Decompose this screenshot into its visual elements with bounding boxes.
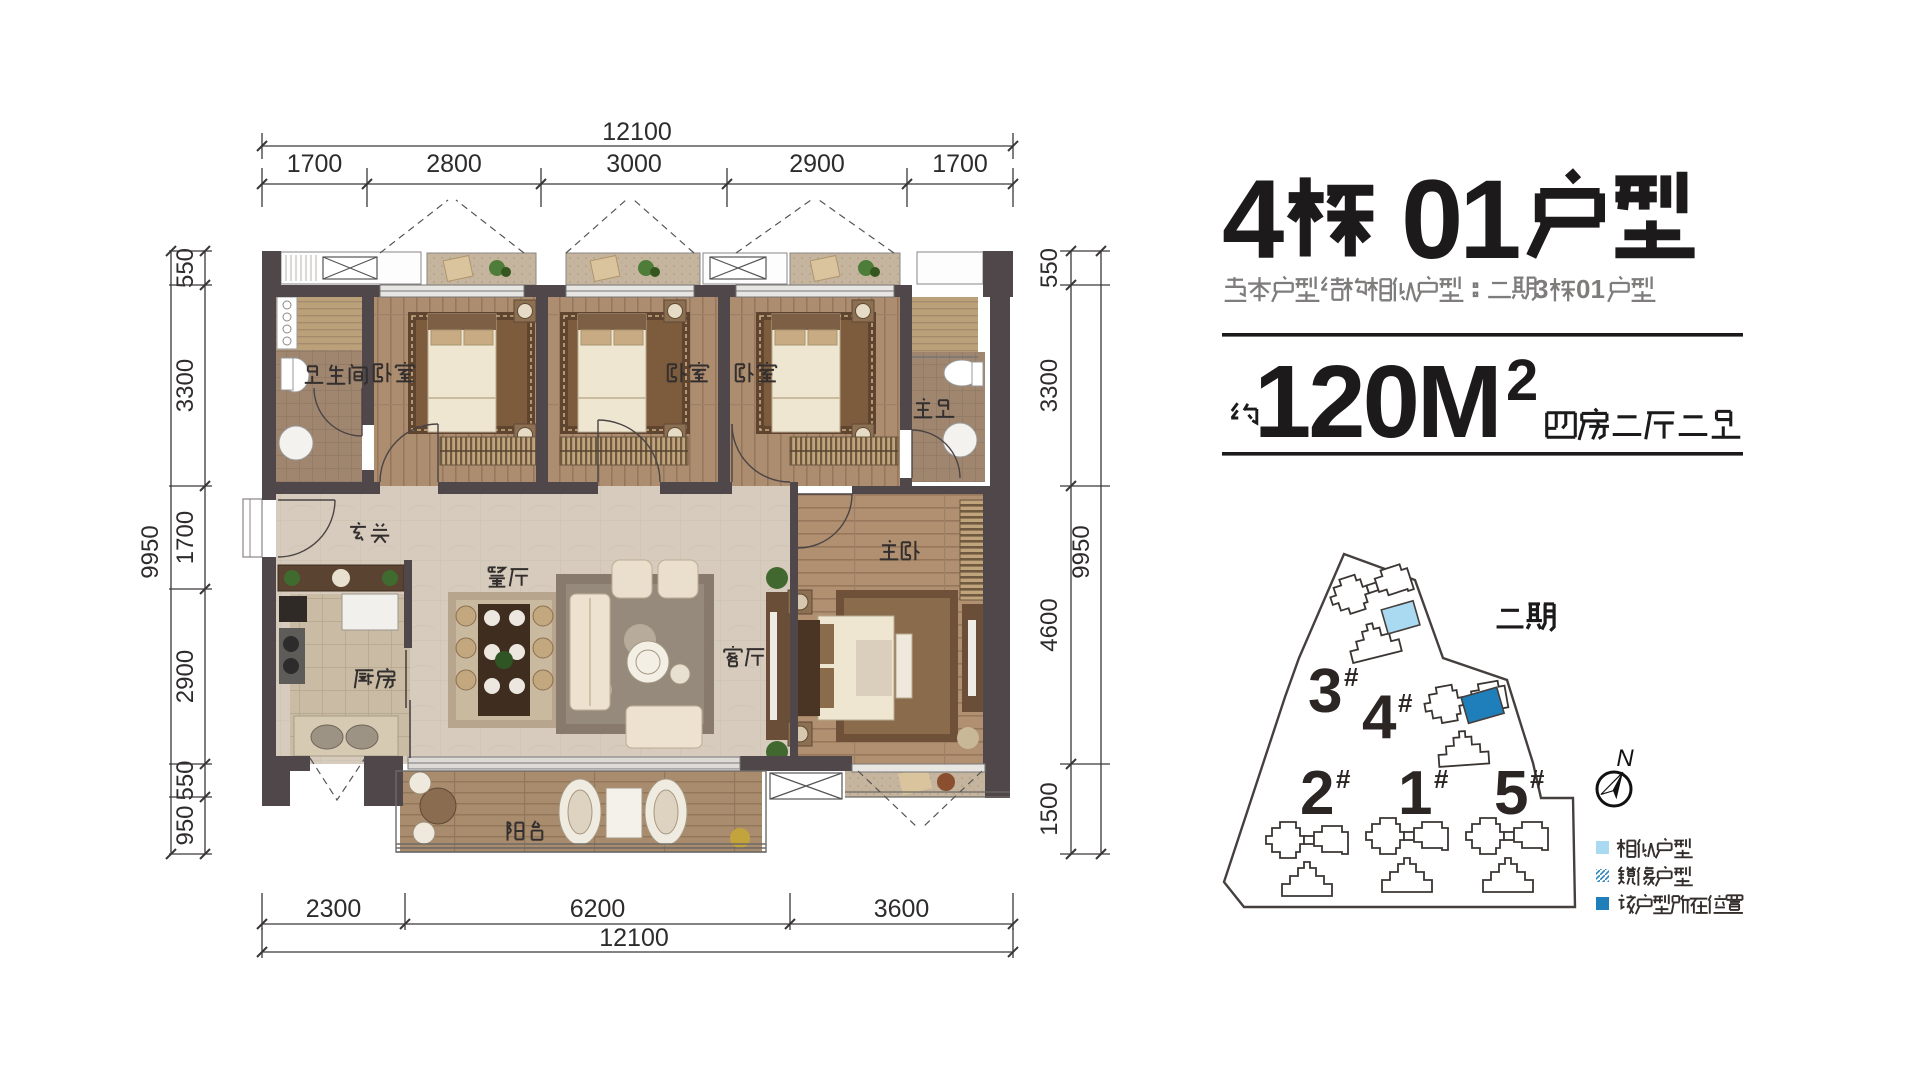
svg-text:1700: 1700 (287, 150, 343, 178)
svg-text:12100: 12100 (599, 924, 669, 952)
svg-text:6200: 6200 (570, 895, 626, 923)
svg-text:4: 4 (1222, 157, 1284, 282)
svg-text:3600: 3600 (874, 895, 930, 923)
svg-text:550: 550 (1036, 248, 1063, 288)
svg-text:1500: 1500 (1036, 782, 1063, 835)
svg-text:950: 950 (172, 805, 199, 845)
svg-text:550: 550 (172, 248, 199, 288)
svg-text:#: # (1530, 764, 1545, 794)
svg-text:12100: 12100 (602, 118, 672, 146)
svg-text:2: 2 (1300, 759, 1334, 828)
svg-text:#: # (1434, 764, 1449, 794)
svg-text:2800: 2800 (426, 150, 482, 178)
svg-text:1700: 1700 (932, 150, 988, 178)
svg-text:#: # (1344, 662, 1359, 692)
svg-text:3300: 3300 (1036, 359, 1063, 412)
svg-text:2300: 2300 (306, 895, 362, 923)
svg-text:9950: 9950 (1068, 525, 1095, 578)
svg-text:9950: 9950 (137, 525, 164, 578)
svg-text:#: # (1398, 688, 1413, 718)
svg-text:550: 550 (172, 760, 199, 800)
svg-text:3300: 3300 (172, 359, 199, 412)
svg-text:N: N (1616, 745, 1634, 772)
svg-text:#: # (1336, 764, 1351, 794)
svg-text:3: 3 (1308, 657, 1342, 726)
svg-text:1700: 1700 (172, 511, 199, 564)
svg-text:2900: 2900 (789, 150, 845, 178)
svg-text:2: 2 (1506, 348, 1538, 413)
svg-text:01: 01 (1401, 157, 1519, 282)
svg-text:120M: 120M (1254, 344, 1500, 459)
svg-text:3000: 3000 (606, 150, 662, 178)
svg-text:4600: 4600 (1036, 598, 1063, 651)
svg-text:1: 1 (1398, 759, 1432, 828)
svg-text:01: 01 (1576, 274, 1605, 304)
svg-text:3: 3 (1534, 274, 1548, 304)
svg-text:2900: 2900 (172, 650, 199, 703)
svg-text:4: 4 (1362, 683, 1397, 752)
svg-text:5: 5 (1494, 759, 1528, 828)
